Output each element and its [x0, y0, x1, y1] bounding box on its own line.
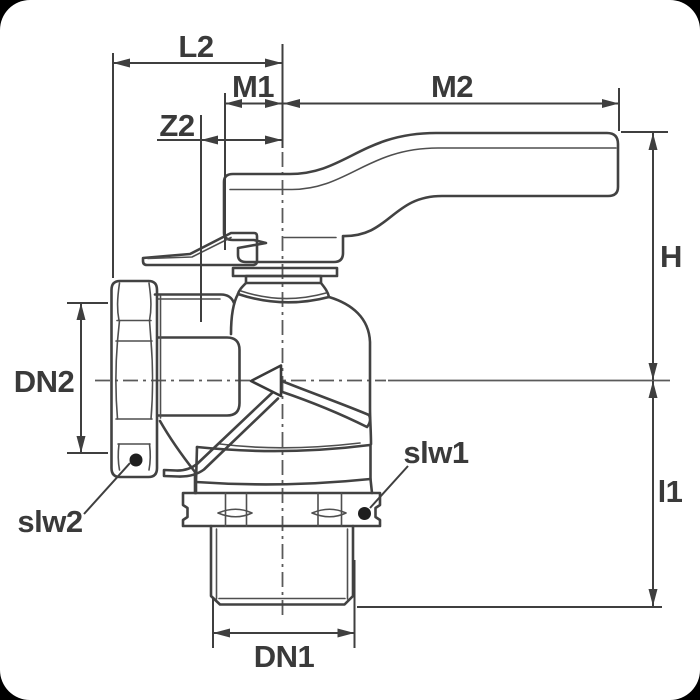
Z2-arrow-left [201, 136, 218, 145]
l1-arrow-top [649, 381, 658, 398]
flow-tail-lower [164, 393, 278, 477]
dim-label-l1: l1 [658, 474, 683, 509]
handle-inner-edge [230, 148, 616, 190]
hex-band-outline [183, 493, 380, 526]
dimension-M1: M1 [225, 69, 282, 250]
L2-arrow-left [113, 59, 130, 68]
DN2-arrow-bottom [77, 436, 86, 453]
slw1-marker-dot [358, 507, 371, 520]
nut-facet-v-mid-right [150, 321, 153, 420]
H-arrow-top [649, 133, 658, 150]
flow-direction-arrow [251, 366, 281, 397]
M2-arrow-right [602, 99, 619, 108]
Z2-arrow-right [265, 136, 282, 145]
nut-facet-v-top-right [149, 283, 151, 321]
stem-packing-nut [246, 276, 321, 283]
dim-label-DN1: DN1 [254, 639, 315, 674]
dim-label-L2: L2 [178, 29, 213, 64]
nut-facet-v-top-left [118, 283, 120, 321]
H-arrow-bottom [649, 363, 658, 380]
callout-label-slw2: slw2 [17, 504, 82, 539]
callout-slw2: slw2 [17, 454, 142, 540]
slw2-marker-dot [130, 454, 143, 467]
slw1-leader-line [370, 466, 408, 508]
L2-arrow-right [265, 59, 282, 68]
slw2-leader-line [84, 463, 130, 514]
dimension-Z2: Z2 [157, 108, 282, 322]
callout-label-slw1: slw1 [403, 435, 468, 470]
dim-label-M1: M1 [232, 69, 274, 104]
dimension-DN2: DN2 [14, 303, 108, 453]
dimension-DN1: DN1 [213, 560, 355, 674]
flange-right-edge [371, 445, 373, 493]
valve-dimension-drawing: L2 M1 M2 [0, 0, 700, 700]
l1-arrow-bottom [649, 589, 658, 606]
nut-facet-v-mid-left [116, 321, 120, 420]
valve-drawing [112, 133, 619, 605]
M2-arrow-left [283, 99, 300, 108]
dimension-H: H [621, 132, 682, 380]
drawing-canvas: L2 M1 M2 [0, 0, 700, 700]
dim-label-DN2: DN2 [14, 364, 75, 399]
DN2-arrow-top [77, 303, 86, 320]
flow-tail-upper [281, 382, 370, 428]
nut-facet-v-bot-left [118, 444, 119, 470]
nut-facet-v-bot-right [149, 444, 150, 470]
DN1-arrow-right [338, 629, 355, 638]
DN1-arrow-left [213, 629, 230, 638]
body-lower-left-transition [160, 421, 195, 493]
body-right-edge [329, 297, 371, 444]
dim-label-Z2: Z2 [159, 108, 194, 143]
dim-label-H: H [660, 239, 682, 274]
dimension-M2: M2 [283, 69, 619, 131]
left-port-union-stub [158, 338, 240, 416]
flange-left-edge [196, 447, 197, 493]
bonnet-right-edge [321, 283, 329, 297]
dimension-l1: l1 [357, 381, 683, 607]
dim-label-M2: M2 [431, 69, 473, 104]
